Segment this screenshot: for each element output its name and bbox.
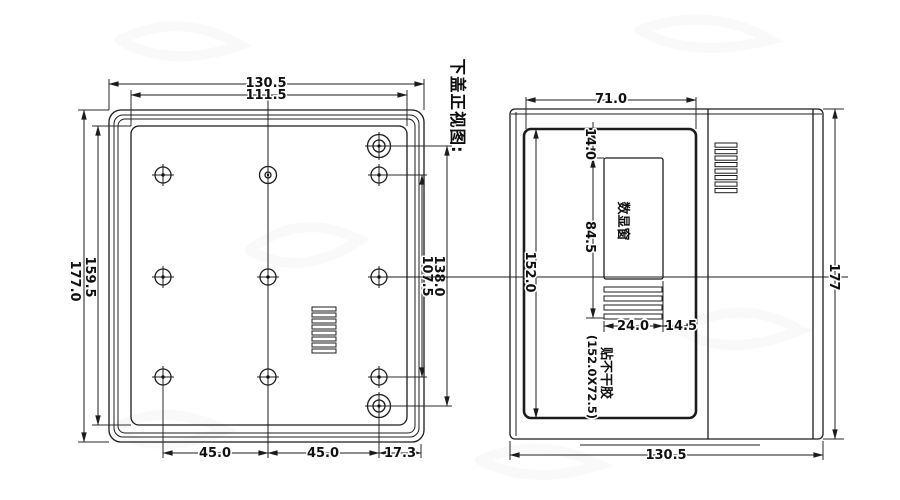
sticker-label-line1: 贴不干胶: [598, 347, 614, 399]
dim-label-panel-height: 152.0: [522, 251, 537, 292]
screw-hole: [257, 366, 279, 388]
dim-label-bottom-left: 45.0: [199, 446, 231, 461]
dim-label-bottom-mid: 45.0: [307, 446, 339, 461]
left-view-bottom-cover: 130.5 111.5 177.0 159.5 138.0 107.5 45.0…: [67, 76, 452, 461]
dim-label-bottom-width: 130.5: [645, 448, 686, 463]
vent-grille: [312, 307, 336, 353]
extension-lines: [78, 79, 452, 458]
dim-label-window-height: 84.5: [582, 221, 597, 253]
screw-hole: [152, 366, 174, 388]
display-window-label: 数显窗: [615, 201, 631, 240]
display-window-outline: [604, 158, 663, 279]
recessed-panel-outline: [131, 126, 407, 425]
dimension-lines: [84, 84, 447, 453]
extension-lines: [510, 97, 844, 460]
cad-drawing-sheet: 130.5 111.5 177.0 159.5 138.0 107.5 45.0…: [0, 0, 900, 500]
shell-wall-line: [114, 115, 419, 437]
dim-label-window-offset: 14.0: [582, 128, 597, 160]
dim-label-side-margin: 14.5: [665, 319, 697, 334]
view-title: 下盖正视图:: [448, 58, 468, 153]
dim-label-top-inner: 111.5: [245, 88, 286, 103]
dim-label-overall-height: 177: [826, 263, 841, 290]
side-outline: [510, 109, 823, 439]
window-slot-grille: [604, 287, 662, 319]
outer-shell-outline: [109, 110, 424, 442]
dim-label-bottom-right: 17.3: [384, 446, 416, 461]
screw-hole: [152, 164, 174, 186]
screw-hole: [368, 266, 390, 288]
screw-hole: [257, 266, 279, 288]
screw-hole: [368, 366, 390, 388]
dim-label-right-inner: 107.5: [419, 255, 434, 296]
side-vent-grille: [715, 143, 737, 193]
sticker-label-line2: (152.0X72.5): [585, 335, 599, 419]
dim-label-panel-width: 71.0: [595, 92, 627, 107]
drawing-canvas: 130.5 111.5 177.0 159.5 138.0 107.5 45.0…: [0, 0, 900, 500]
dim-label-window-width: 24.0: [617, 319, 649, 334]
dim-label-left-inner: 159.5: [82, 256, 97, 297]
dim-label-left-outer: 177.0: [67, 260, 82, 301]
screw-hole: [368, 164, 390, 186]
screw-hole: [152, 266, 174, 288]
